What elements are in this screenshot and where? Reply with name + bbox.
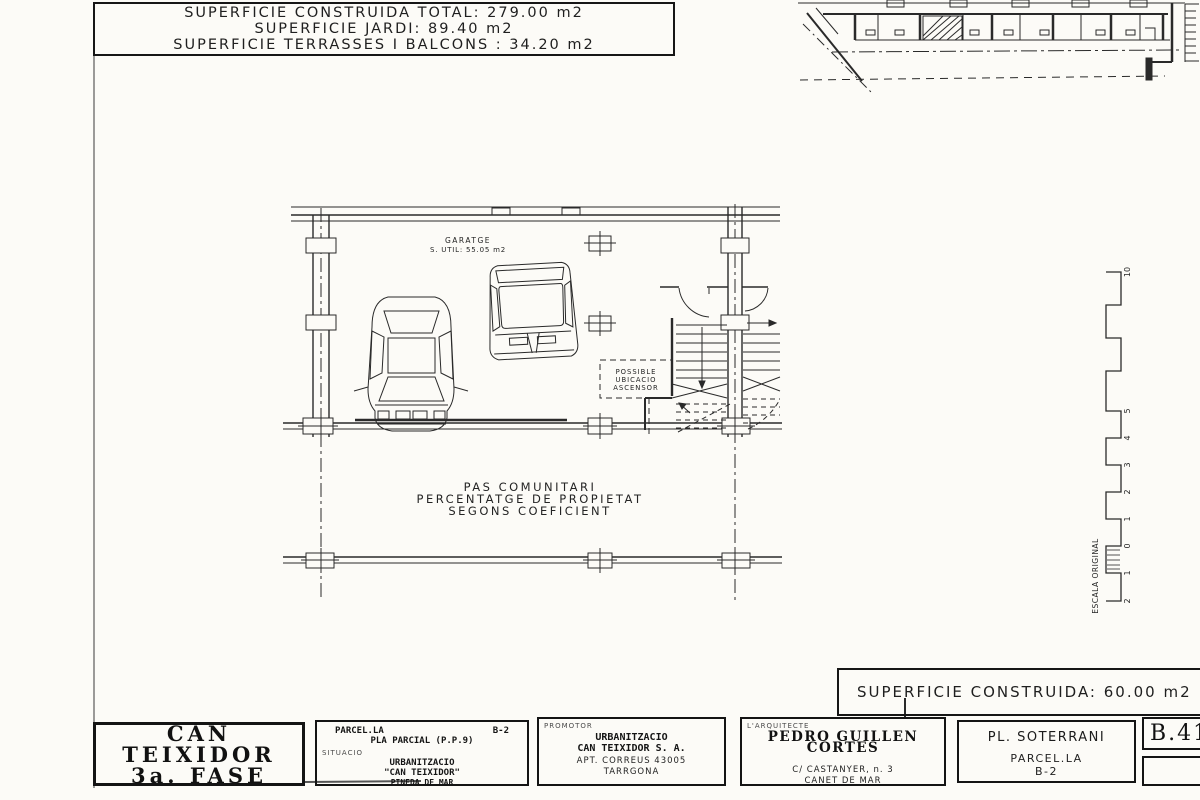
sheet-parcel: PARCEL.LA xyxy=(959,752,1134,765)
svg-text:SEGONS COEFICIENT: SEGONS COEFICIENT xyxy=(448,504,611,518)
constructed-area-box: SUPERFICIE CONSTRUIDA: 60.00 m2 xyxy=(837,668,1200,716)
title-block-situacio: PARCEL.LA B-2 PLA PARCIAL (P.P.9) SITUAC… xyxy=(315,720,529,786)
svg-text:0: 0 xyxy=(1123,543,1132,548)
promotor-line1: URBANITZACIO xyxy=(539,732,724,743)
situacio-tag: SITUACIO xyxy=(322,748,527,758)
promotor-line2: CAN TEIXIDOR S. A. xyxy=(539,743,724,754)
column-symbol xyxy=(298,413,755,439)
situacio-urb: URBANITZACIO xyxy=(317,758,527,768)
scanned-blueprint-sheet: { "colors": { "ink": "#242424", "paper":… xyxy=(0,0,1200,800)
arquitecte-name: PEDRO GUILLEN CORTES xyxy=(742,732,944,754)
project-line3: 3a. FASE xyxy=(96,765,302,786)
title-block-sheet: PL. SOTERRANI PARCEL.LA B-2 xyxy=(957,720,1136,783)
title-block-promotor: PROMOTOR URBANITZACIO CAN TEIXIDOR S. A.… xyxy=(537,717,726,786)
garage-label: GARATGE xyxy=(445,236,491,245)
project-line1: CAN xyxy=(96,723,302,744)
scale-tick: 10 xyxy=(1123,267,1132,277)
sheet-title: PL. SOTERRANI xyxy=(959,730,1134,745)
situacio-city: PINEDA DE MAR xyxy=(317,778,527,786)
sheet-parcel-num: B-2 xyxy=(959,765,1134,778)
staircase xyxy=(645,318,780,432)
edge-ruler xyxy=(1185,4,1199,62)
summary-line-total: SUPERFICIE CONSTRUIDA TOTAL: 279.00 m2 xyxy=(184,5,584,21)
arquitecte-addr1: C/ CASTANYER, n. 3 xyxy=(742,765,944,776)
elevator-label: POSSIBLE xyxy=(616,368,657,376)
arquitecte-addr2: CANET DE MAR xyxy=(742,776,944,786)
svg-text:ASCENSOR: ASCENSOR xyxy=(613,384,658,392)
promotor-tag: PROMOTOR xyxy=(544,721,724,732)
situacio-urb-name: "CAN TEIXIDOR" xyxy=(317,768,527,778)
parcel-label: PARCEL.LA xyxy=(335,726,384,736)
door-swing xyxy=(660,287,768,317)
svg-text:1: 1 xyxy=(1123,516,1132,521)
garage-area-label: S. UTIL: 55.05 m2 xyxy=(430,246,506,254)
sheet-number: B.41 xyxy=(1150,721,1200,746)
summary-line-jardi: SUPERFICIE JARDI: 89.40 m2 xyxy=(254,21,513,37)
promotor-line3: APT. CORREUS 43005 xyxy=(539,756,724,767)
svg-text:UBICACIO: UBICACIO xyxy=(615,376,656,384)
title-block-project: CAN TEIXIDOR 3a. FASE xyxy=(93,722,305,786)
pla-parcial: PLA PARCIAL (P.P.9) xyxy=(317,736,527,746)
title-block-arquitecte: L'ARQUITECTE PEDRO GUILLEN CORTES C/ CAS… xyxy=(740,717,946,786)
svg-text:2: 2 xyxy=(1123,598,1132,603)
summary-line-terrasses: SUPERFICIE TERRASSES I BALCONS : 34.20 m… xyxy=(173,37,594,53)
garage-floor-plan: GARATGE S. UTIL: 55.05 m2 POSSIBLE UBICA… xyxy=(283,204,782,600)
van-icon xyxy=(486,262,579,360)
constructed-area-text: SUPERFICIE CONSTRUIDA: 60.00 m2 xyxy=(857,683,1192,701)
svg-text:2: 2 xyxy=(1123,489,1132,494)
scale-bar: 10 5 4 3 2 1 0 1 2 ESCALA ORIGINAL xyxy=(1091,267,1132,614)
title-block-empty-box xyxy=(1142,756,1200,786)
svg-text:3: 3 xyxy=(1123,462,1132,467)
column-symbol xyxy=(301,548,755,573)
car-icon xyxy=(354,297,468,431)
parcel-number: B-2 xyxy=(493,726,509,736)
title-block-number: B.41 xyxy=(1142,717,1200,750)
svg-text:4: 4 xyxy=(1123,435,1132,440)
column-symbol xyxy=(584,231,616,336)
site-plan-strip xyxy=(798,0,1199,93)
project-line2: TEIXIDOR xyxy=(96,744,302,765)
surface-summary-box: SUPERFICIE CONSTRUIDA TOTAL: 279.00 m2 S… xyxy=(93,2,675,56)
svg-text:5: 5 xyxy=(1123,408,1132,413)
hatched-parcel-cell xyxy=(923,16,962,40)
promotor-line4: TARRGONA xyxy=(539,767,724,778)
scale-bar-label: ESCALA ORIGINAL xyxy=(1091,538,1100,614)
svg-text:1: 1 xyxy=(1123,570,1132,575)
